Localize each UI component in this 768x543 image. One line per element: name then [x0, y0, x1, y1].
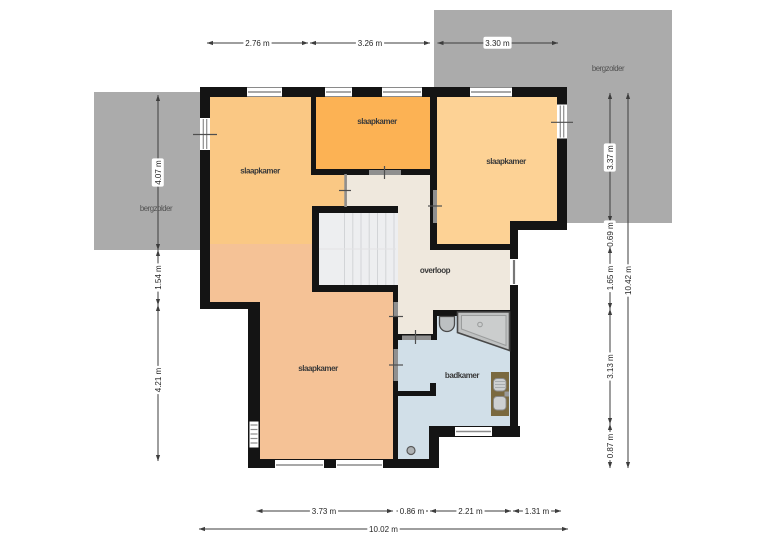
svg-text:2.21 m: 2.21 m	[458, 507, 483, 516]
svg-text:slaapkamer: slaapkamer	[357, 117, 397, 126]
svg-text:bergzolder: bergzolder	[140, 204, 173, 213]
svg-text:2.76 m: 2.76 m	[245, 39, 270, 48]
svg-text:10.42 m: 10.42 m	[624, 266, 633, 295]
svg-text:slaapkamer: slaapkamer	[298, 364, 338, 373]
svg-text:0.86 m: 0.86 m	[400, 507, 425, 516]
svg-text:0.69 m: 0.69 m	[606, 222, 615, 247]
svg-text:1.31 m: 1.31 m	[525, 507, 550, 516]
svg-text:10.02 m: 10.02 m	[369, 525, 398, 534]
svg-text:slaapkamer: slaapkamer	[240, 167, 280, 176]
svg-text:3.73 m: 3.73 m	[312, 507, 337, 516]
svg-text:badkamer: badkamer	[445, 371, 480, 380]
svg-text:slaapkamer: slaapkamer	[486, 157, 526, 166]
svg-text:overloop: overloop	[420, 266, 451, 275]
svg-text:bergzolder: bergzolder	[592, 64, 625, 73]
svg-text:1.65 m: 1.65 m	[606, 265, 615, 290]
svg-text:3.13 m: 3.13 m	[606, 354, 615, 379]
svg-text:3.30 m: 3.30 m	[485, 39, 510, 48]
svg-text:0.87 m: 0.87 m	[606, 433, 615, 458]
svg-text:3.26 m: 3.26 m	[358, 39, 383, 48]
svg-text:4.07 m: 4.07 m	[154, 160, 163, 185]
svg-text:3.37 m: 3.37 m	[606, 145, 615, 170]
svg-text:1.54 m: 1.54 m	[154, 265, 163, 290]
svg-text:4.21 m: 4.21 m	[154, 367, 163, 392]
